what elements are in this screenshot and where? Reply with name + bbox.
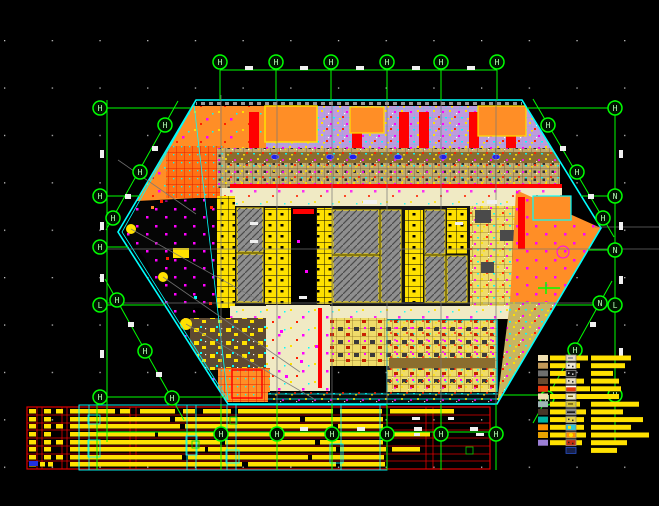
table-text-bar bbox=[175, 417, 300, 422]
legend-color-swatch bbox=[538, 417, 548, 423]
dimension-text-mark bbox=[467, 66, 475, 70]
legend-label-bar bbox=[591, 440, 627, 445]
legend-pattern-swatch bbox=[566, 363, 576, 369]
table-text-bar bbox=[238, 409, 333, 414]
drawing-shape bbox=[250, 222, 258, 225]
grid-bubble-label: L bbox=[98, 301, 103, 310]
table-text-bar bbox=[392, 447, 420, 452]
dimension-text-mark bbox=[619, 150, 623, 158]
table-text-bar bbox=[44, 447, 51, 452]
table-blue-cell bbox=[29, 461, 38, 466]
table-text-bar bbox=[56, 455, 63, 460]
grid-bubble-label: H bbox=[98, 192, 103, 201]
table-text-speck bbox=[412, 417, 420, 420]
table-text-bar bbox=[120, 409, 130, 414]
legend-color-swatch bbox=[538, 440, 548, 446]
drawing-shape bbox=[210, 206, 213, 209]
table-text-bar bbox=[340, 462, 385, 467]
shaft-cap bbox=[293, 209, 314, 214]
cad-canvas[interactable]: HHHHHHHHHHHHHHHLHHNNLHHHHHHHHHHNHH bbox=[0, 0, 659, 506]
legend-label-bar bbox=[591, 356, 631, 361]
legend-color-swatch bbox=[538, 424, 548, 430]
drawing-shape bbox=[330, 318, 387, 366]
grid-bubble-label: N bbox=[613, 246, 618, 255]
table-text-bar bbox=[44, 455, 51, 460]
drawing-shape bbox=[297, 240, 300, 243]
table-text-bar bbox=[340, 447, 386, 452]
dimension-text-mark bbox=[128, 322, 134, 327]
legend-swatch-detail bbox=[572, 443, 574, 445]
dimension-text-mark bbox=[619, 348, 623, 356]
table-text-speck bbox=[448, 417, 454, 420]
table-text-bar bbox=[70, 424, 180, 429]
drawing-shape bbox=[280, 330, 283, 333]
cyan-framed-room bbox=[533, 196, 571, 220]
legend-label-bar bbox=[591, 371, 613, 376]
grid-bubble-label: L bbox=[613, 301, 618, 310]
dimension-text-mark bbox=[125, 194, 131, 199]
drawing-shape bbox=[299, 296, 307, 299]
table-text-bar bbox=[305, 417, 383, 422]
grid-bubble-label: H bbox=[138, 168, 143, 177]
legend-swatch-detail bbox=[568, 442, 570, 444]
drawing-shape bbox=[315, 345, 318, 348]
dimension-text-mark bbox=[487, 200, 497, 204]
legend-swatch-detail bbox=[568, 426, 571, 429]
dimension-text-mark bbox=[156, 372, 162, 377]
drawing-shape bbox=[447, 256, 467, 302]
legend-pattern-swatch bbox=[566, 378, 576, 384]
grid-bubble-label: N bbox=[598, 299, 603, 308]
legend-swatch-detail bbox=[572, 373, 574, 375]
table-text-bar bbox=[44, 409, 51, 414]
drawing-shape bbox=[425, 210, 445, 254]
legend-swatch-detail bbox=[568, 372, 570, 374]
table-text-bar bbox=[70, 447, 205, 452]
legend-label-bar bbox=[591, 409, 623, 414]
table-text-bar bbox=[248, 462, 336, 467]
table-text-bar bbox=[70, 455, 182, 460]
legend-swatch-detail bbox=[572, 366, 574, 368]
drawing-shape bbox=[265, 208, 291, 304]
table-text-speck bbox=[476, 433, 484, 436]
dimension-text-mark bbox=[357, 427, 365, 431]
legend-swatch-detail bbox=[568, 396, 573, 398]
table-text-bar bbox=[44, 432, 51, 437]
door-marker bbox=[326, 155, 334, 160]
table-text-bar bbox=[29, 440, 36, 445]
legend-pattern-swatch bbox=[566, 417, 576, 423]
grid-bubble-label: H bbox=[115, 296, 120, 305]
curtain-wall-mullions bbox=[196, 100, 522, 106]
table-text-bar bbox=[44, 424, 51, 429]
framed-room bbox=[265, 106, 317, 142]
legend-color-swatch bbox=[538, 355, 548, 361]
table-text-bar bbox=[158, 432, 336, 437]
drawing-shape bbox=[455, 222, 463, 225]
grid-bubble-label: H bbox=[494, 430, 499, 439]
drawing-shape bbox=[333, 256, 379, 302]
drawing-shape bbox=[237, 208, 263, 252]
legend-color-swatch bbox=[538, 409, 548, 415]
grid-bubble-label: H bbox=[98, 104, 103, 113]
drawing-shape bbox=[285, 375, 288, 378]
table-text-bar bbox=[56, 440, 63, 445]
dimension-text-mark bbox=[300, 66, 308, 70]
dimension-text-mark bbox=[152, 146, 158, 151]
red-bar bbox=[419, 112, 429, 150]
drawing-shape bbox=[160, 200, 163, 203]
dimension-text-mark bbox=[412, 66, 420, 70]
grid-bubble-label: H bbox=[111, 214, 116, 223]
shaft bbox=[291, 208, 316, 304]
dimension-text-mark bbox=[560, 146, 566, 151]
table-text-bar bbox=[29, 447, 36, 452]
legend-swatch-detail bbox=[568, 419, 570, 421]
legend-label-bar bbox=[591, 379, 619, 384]
dimension-text-mark bbox=[100, 350, 104, 358]
legend-color-swatch bbox=[538, 378, 548, 384]
corridor-b bbox=[389, 358, 495, 368]
drawing-shape bbox=[425, 256, 445, 302]
dimension-text-mark bbox=[300, 427, 308, 431]
grid-bubble-label: H bbox=[330, 430, 335, 439]
grid-bubble-label: H bbox=[601, 214, 606, 223]
legend-swatch-detail bbox=[568, 403, 573, 405]
drawing-shape bbox=[237, 254, 263, 302]
drawing-shape bbox=[220, 188, 562, 206]
legend-swatch-detail bbox=[572, 420, 574, 422]
table-text-bar bbox=[44, 417, 51, 422]
legend-swatch-detail bbox=[568, 380, 570, 382]
table-text-bar bbox=[390, 409, 454, 414]
table-text-bar bbox=[56, 409, 63, 414]
grid-bubble-label: H bbox=[385, 430, 390, 439]
grid-bubble-label: H bbox=[439, 430, 444, 439]
drawing-shape bbox=[166, 146, 224, 198]
legend-label-bar bbox=[591, 448, 617, 453]
grid-bubble-label: H bbox=[495, 58, 500, 67]
grid-bubble-label: H bbox=[275, 430, 280, 439]
legend-color-swatch bbox=[538, 370, 548, 376]
legend-color-swatch bbox=[538, 394, 548, 400]
table-text-bar bbox=[48, 462, 53, 467]
table-text-bar bbox=[29, 417, 36, 422]
drawing-shape bbox=[217, 196, 235, 308]
drawing-shape bbox=[333, 210, 379, 254]
legend-color-swatch bbox=[538, 363, 548, 369]
grid-bubble-label: H bbox=[218, 58, 223, 67]
legend-label-bar bbox=[591, 433, 649, 438]
drawing-shape bbox=[381, 210, 401, 302]
drawing-shape bbox=[405, 210, 423, 302]
table-text-bar bbox=[70, 417, 170, 422]
grid-bubble-label: H bbox=[385, 58, 390, 67]
table-text-bar bbox=[40, 462, 45, 467]
legend-label-bar bbox=[591, 394, 619, 399]
drawing-shape bbox=[475, 210, 491, 223]
dimension-text-mark bbox=[100, 222, 104, 230]
table-text-bar bbox=[56, 424, 63, 429]
legend-swatch-detail bbox=[572, 381, 574, 383]
grid-bubble-label: H bbox=[219, 430, 224, 439]
grid-bubble-label: H bbox=[143, 347, 148, 356]
table-text-bar bbox=[185, 424, 333, 429]
legend-color-swatch bbox=[538, 386, 548, 392]
legend-color-swatch bbox=[538, 432, 548, 438]
table-text-bar bbox=[29, 432, 36, 437]
legend-label-bar bbox=[591, 417, 643, 422]
framed-room bbox=[350, 107, 384, 133]
drawing-shape bbox=[250, 240, 258, 243]
red-strip bbox=[230, 184, 562, 188]
table-text-bar bbox=[70, 432, 155, 437]
drawing-shape bbox=[166, 257, 169, 260]
legend-label-bar bbox=[591, 363, 625, 368]
door-marker bbox=[394, 155, 402, 160]
grid-bubble-label: H bbox=[573, 346, 578, 355]
table-text-bar bbox=[70, 409, 115, 414]
grid-bubble-label: H bbox=[98, 393, 103, 402]
table-text-bar bbox=[70, 462, 242, 467]
drawing-shape bbox=[268, 392, 498, 404]
dimension-text-mark bbox=[588, 194, 594, 199]
grid-bubble-label: H bbox=[546, 121, 551, 130]
dimension-text-mark bbox=[363, 200, 377, 204]
red-bar bbox=[518, 197, 525, 249]
grid-bubble-label: H bbox=[98, 243, 103, 252]
drawing-shape bbox=[151, 206, 154, 209]
grid-bubble-label: N bbox=[613, 192, 618, 201]
red-bar bbox=[399, 112, 409, 150]
dimension-text-mark bbox=[590, 322, 596, 327]
legend-label-bar bbox=[591, 386, 621, 391]
table-text-bar bbox=[340, 409, 382, 414]
door-marker bbox=[349, 155, 357, 160]
legend-label-bar bbox=[591, 402, 639, 407]
drawing-shape bbox=[447, 208, 467, 254]
grid-bubble-label: H bbox=[439, 58, 444, 67]
table-text-bar bbox=[188, 455, 308, 460]
framed-room bbox=[478, 106, 526, 136]
red-bar bbox=[249, 112, 259, 150]
red-wall bbox=[318, 308, 322, 388]
legend-label-bar bbox=[591, 425, 631, 430]
drawing-shape bbox=[300, 360, 303, 363]
legend-swatch-detail bbox=[568, 365, 570, 367]
grid-bubble-label: H bbox=[329, 58, 334, 67]
grid-bubble-label: H bbox=[613, 104, 618, 113]
dimension-text-mark bbox=[100, 150, 104, 158]
dimension-text-mark bbox=[619, 276, 623, 284]
table-text-bar bbox=[44, 440, 51, 445]
legend-color-swatch bbox=[538, 401, 548, 407]
grid-bubble-label: H bbox=[163, 121, 168, 130]
legend-swatch-detail bbox=[569, 433, 573, 437]
table-text-bar bbox=[183, 409, 195, 414]
drawing-shape bbox=[317, 208, 332, 304]
drawing-shape bbox=[500, 230, 515, 241]
dimension-text-mark bbox=[470, 427, 478, 431]
grid-bubble-label: H bbox=[575, 168, 580, 177]
legend-swatch-detail bbox=[567, 411, 575, 413]
grid-bubble-label: H bbox=[274, 58, 279, 67]
door-marker bbox=[271, 155, 279, 160]
table-text-bar bbox=[340, 432, 384, 437]
legend-swatch-detail bbox=[566, 386, 576, 388]
legend-pattern-swatch bbox=[566, 440, 576, 446]
dimension-text-mark bbox=[619, 222, 623, 230]
cad-drawing-viewport[interactable]: HHHHHHHHHHHHHHHLHHNNLHHHHHHHHHHNHH bbox=[0, 0, 659, 506]
drawing-shape bbox=[305, 270, 308, 273]
table-text-bar bbox=[392, 432, 430, 437]
table-text-bar bbox=[225, 440, 315, 445]
table-text-bar bbox=[140, 409, 175, 414]
table-text-bar bbox=[312, 455, 384, 460]
table-text-speck bbox=[414, 433, 420, 436]
grid-bubble-label: H bbox=[170, 394, 175, 403]
dimension-text-mark bbox=[100, 274, 104, 282]
dimension-text-mark bbox=[356, 66, 364, 70]
table-text-bar bbox=[29, 424, 36, 429]
dimension-text-mark bbox=[245, 66, 253, 70]
drawing-shape bbox=[209, 302, 212, 305]
table-text-bar bbox=[29, 455, 36, 460]
legend-swatch-detail bbox=[568, 357, 573, 359]
table-text-bar bbox=[29, 409, 36, 414]
dimension-text-mark bbox=[414, 427, 422, 431]
legend-pattern-swatch bbox=[566, 370, 576, 376]
door-marker bbox=[439, 155, 447, 160]
legend-pattern-swatch bbox=[566, 447, 576, 453]
drawing-shape bbox=[481, 262, 494, 273]
